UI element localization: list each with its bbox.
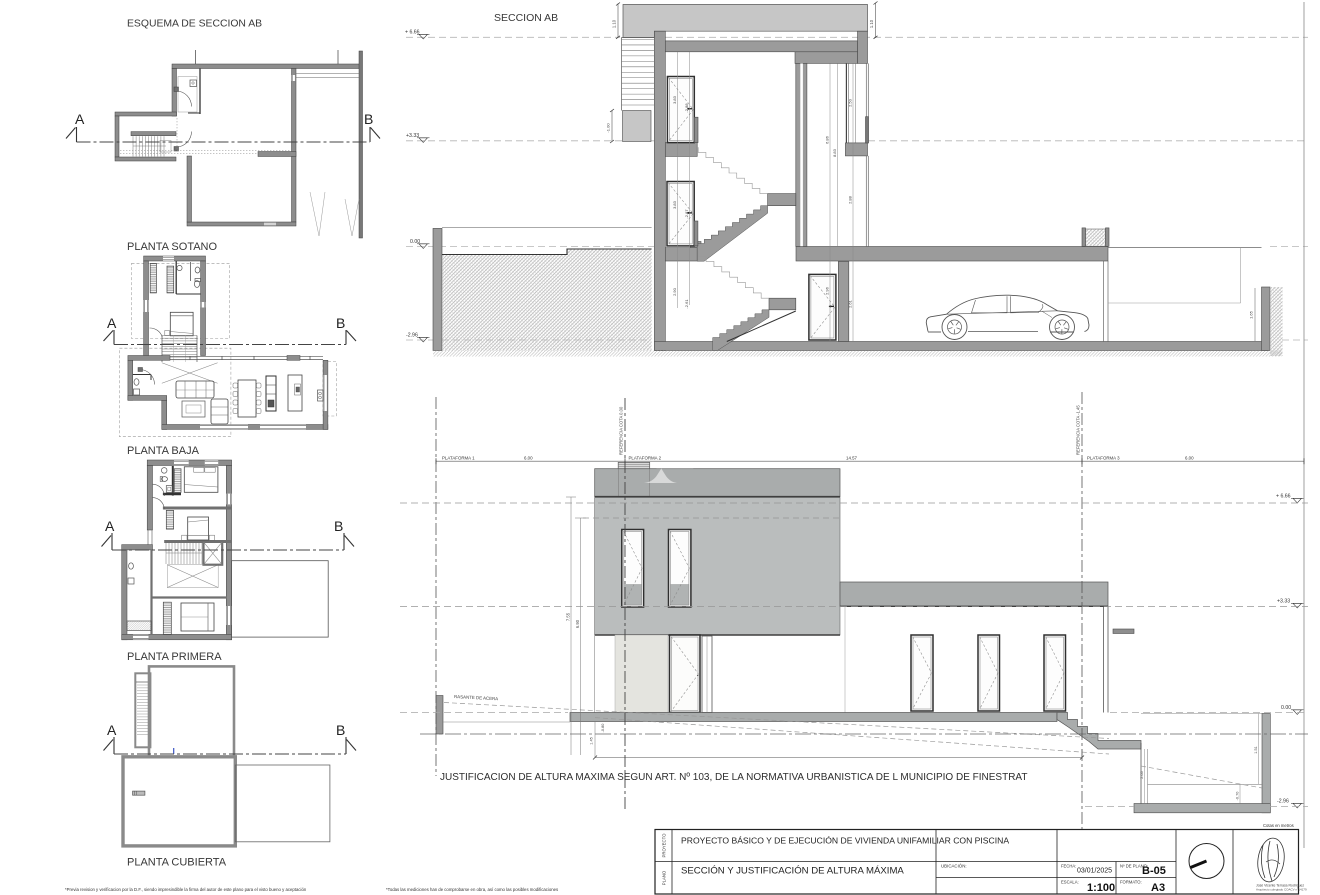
svg-text:-2.88: -2.88 <box>684 103 689 113</box>
svg-text:+ 6.66: + 6.66 <box>405 30 420 36</box>
svg-text:-2.96: -2.96 <box>406 333 418 339</box>
svg-text:1:100: 1:100 <box>1087 882 1115 894</box>
svg-text:ESCALA:: ESCALA: <box>1061 880 1079 885</box>
svg-text:1.10: 1.10 <box>612 19 617 28</box>
svg-text:PLATAFORMA 1: PLATAFORMA 1 <box>442 456 475 461</box>
svg-text:6.86: 6.86 <box>825 135 830 144</box>
svg-text:1.65: 1.65 <box>1249 310 1254 319</box>
svg-text:-2.87: -2.87 <box>684 209 689 219</box>
svg-text:1.51: 1.51 <box>1254 746 1258 753</box>
svg-text:2.50: 2.50 <box>848 98 853 107</box>
svg-text:-2.96: -2.96 <box>1277 799 1289 805</box>
svg-text:+3.33: +3.33 <box>406 133 419 139</box>
svg-text:B: B <box>364 111 373 127</box>
svg-text:03/01/2025: 03/01/2025 <box>1077 868 1112 875</box>
svg-text:14.57: 14.57 <box>846 456 858 461</box>
svg-text:ESQUEMA DE SECCION AB: ESQUEMA DE SECCION AB <box>127 19 262 30</box>
svg-text:B: B <box>334 518 343 534</box>
svg-text:+3.33: +3.33 <box>1277 599 1290 605</box>
svg-text:PLANO: PLANO <box>662 870 667 885</box>
svg-text:JUSTIFICACION DE ALTURA MAXIMA: JUSTIFICACION DE ALTURA MAXIMA SEGUN ART… <box>440 772 1027 783</box>
svg-text:1.45: 1.45 <box>590 737 594 744</box>
svg-text:PLATAFORMA 2: PLATAFORMA 2 <box>629 456 662 461</box>
svg-text:B: B <box>336 722 345 738</box>
svg-text:-1.00: -1.00 <box>606 123 611 133</box>
svg-text:2.90: 2.90 <box>672 287 677 296</box>
svg-text:6.00: 6.00 <box>1185 456 1194 461</box>
svg-text:PLANTA BAJA: PLANTA BAJA <box>127 445 200 457</box>
svg-text:6.90: 6.90 <box>575 619 580 628</box>
svg-text:SECCIÓN Y JUSTIFICACIÓN DE ALT: SECCIÓN Y JUSTIFICACIÓN DE ALTURA MÁXIMA <box>681 866 904 877</box>
svg-text:Cotas en metros: Cotas en metros <box>1263 823 1294 828</box>
svg-text:3.83: 3.83 <box>672 200 677 209</box>
svg-text:REFERENCIA COTA 0.00: REFERENCIA COTA 0.00 <box>619 406 624 455</box>
svg-text:-0.80: -0.80 <box>601 724 605 733</box>
svg-text:PLANTA CUBIERTA: PLANTA CUBIERTA <box>127 857 227 869</box>
svg-text:PROYECTO BÁSICO Y DE EJECUCIÓN: PROYECTO BÁSICO Y DE EJECUCIÓN DE VIVIEN… <box>681 836 1009 846</box>
svg-text:8.83: 8.83 <box>832 148 837 157</box>
svg-text:PLANTA PRIMERA: PLANTA PRIMERA <box>127 651 222 663</box>
svg-text:-2.61: -2.61 <box>684 299 689 309</box>
svg-text:REFERENCIA COTA -1.45: REFERENCIA COTA -1.45 <box>1076 405 1081 455</box>
svg-text:2.05: 2.05 <box>1139 770 1144 779</box>
svg-text:UBICACIÓN:: UBICACIÓN: <box>941 864 967 869</box>
svg-text:6.00: 6.00 <box>524 456 533 461</box>
svg-text:2.88: 2.88 <box>848 195 853 204</box>
svg-text:-0.70: -0.70 <box>1236 792 1240 801</box>
svg-text:A: A <box>107 315 117 331</box>
svg-text:2.61: 2.61 <box>848 299 853 308</box>
svg-text:0.00: 0.00 <box>1281 705 1291 711</box>
svg-text:PLATAFORMA 3: PLATAFORMA 3 <box>1087 456 1120 461</box>
svg-text:B: B <box>336 315 345 331</box>
svg-text:SECCION AB: SECCION AB <box>494 12 558 24</box>
svg-text:A3: A3 <box>1151 882 1165 894</box>
svg-text:A: A <box>105 518 115 534</box>
svg-text:PLANTA SOTANO: PLANTA SOTANO <box>127 241 218 253</box>
svg-text:*Todas las mediciones han de c: *Todas las mediciones han de comprobarse… <box>386 887 558 892</box>
svg-text:PROYECTO: PROYECTO <box>662 833 667 858</box>
svg-text:A: A <box>107 722 117 738</box>
svg-text:A: A <box>75 111 85 127</box>
svg-text:+ 6.66: + 6.66 <box>1276 494 1291 500</box>
svg-text:B-05: B-05 <box>1142 865 1166 877</box>
svg-text:*Previa revision y verificacio: *Previa revision y verificacion por la D… <box>65 887 307 892</box>
svg-text:7.55: 7.55 <box>566 612 571 621</box>
svg-text:3.83: 3.83 <box>672 95 677 104</box>
svg-text:0.00: 0.00 <box>410 239 420 245</box>
svg-text:2.96: 2.96 <box>825 286 830 295</box>
svg-text:1.10: 1.10 <box>869 19 874 28</box>
svg-text:FORMATO:: FORMATO: <box>1120 880 1142 885</box>
svg-text:FECHA:: FECHA: <box>1061 864 1076 869</box>
svg-text:Arquitecto colegiado COACV nº1: Arquitecto colegiado COACV nº14179 <box>1256 888 1307 892</box>
